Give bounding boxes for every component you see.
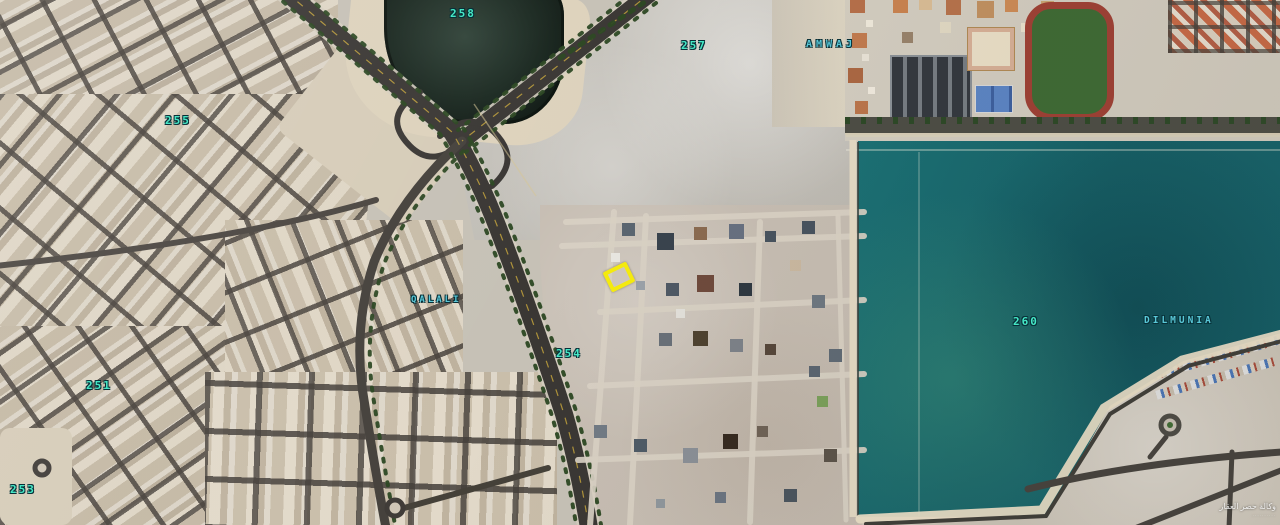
dirt-roads bbox=[562, 212, 864, 525]
watermark-arabic-text: وكالة حصر العقار bbox=[1188, 502, 1276, 511]
qalali-roundabouts bbox=[35, 461, 403, 516]
label-block-251: 251 bbox=[86, 379, 112, 392]
watermark-subtext: ·········· bbox=[1188, 511, 1276, 520]
imagery-watermark: وكالة حصر العقار ·········· bbox=[1188, 502, 1276, 520]
roundabout bbox=[35, 461, 49, 475]
label-amwaj: AMWAJ bbox=[806, 39, 856, 50]
houses-under-construction bbox=[540, 205, 541, 206]
label-block-253: 253 bbox=[10, 483, 36, 496]
label-block-254: 254 bbox=[556, 347, 582, 360]
label-block-258: 258 bbox=[450, 7, 476, 20]
roundabout bbox=[387, 500, 403, 516]
label-dilmunia: DILMUNIA bbox=[1144, 315, 1214, 326]
label-block-260: 260 bbox=[1013, 315, 1039, 328]
label-block-257: 257 bbox=[681, 39, 707, 52]
dilmunia-shore-sand bbox=[860, 334, 1280, 519]
label-qalali: QALALI bbox=[411, 295, 462, 305]
satellite-map[interactable]: 258 257 AMWAJ 255 QALALI 254 251 253 260… bbox=[0, 0, 1280, 525]
city-roads bbox=[0, 141, 548, 525]
highway-northeast bbox=[462, 0, 652, 141]
roads-overlay bbox=[0, 0, 1280, 525]
label-block-255: 255 bbox=[165, 114, 191, 127]
dilmunia-roads bbox=[860, 334, 1280, 525]
